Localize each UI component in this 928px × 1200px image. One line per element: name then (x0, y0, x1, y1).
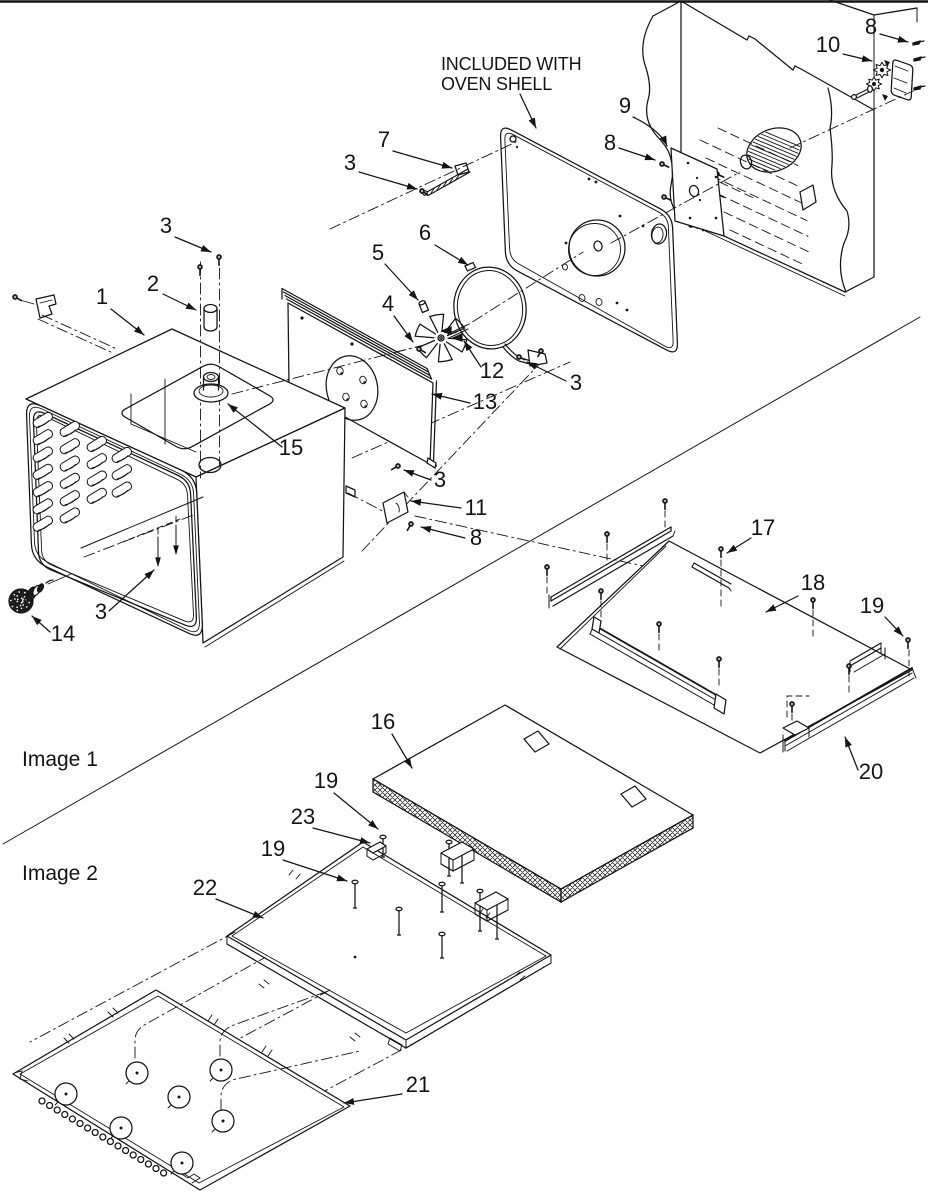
svg-text:12: 12 (480, 358, 504, 383)
svg-text:3: 3 (434, 467, 446, 492)
svg-text:4: 4 (382, 291, 394, 316)
svg-text:3: 3 (344, 150, 356, 175)
svg-text:8: 8 (470, 525, 482, 550)
svg-text:14: 14 (51, 621, 75, 646)
svg-text:13: 13 (473, 389, 497, 414)
svg-text:7: 7 (378, 127, 390, 152)
svg-text:1: 1 (96, 284, 108, 309)
svg-text:20: 20 (859, 759, 883, 784)
svg-text:Image 2: Image 2 (22, 862, 98, 885)
svg-text:10: 10 (816, 32, 840, 57)
svg-text:3: 3 (570, 370, 582, 395)
svg-text:19: 19 (860, 593, 884, 618)
svg-text:19: 19 (314, 768, 338, 793)
svg-text:8: 8 (604, 130, 616, 155)
svg-text:19: 19 (261, 836, 285, 861)
svg-text:3: 3 (160, 213, 172, 238)
svg-text:8: 8 (865, 14, 877, 39)
svg-text:18: 18 (801, 570, 825, 595)
svg-text:23: 23 (291, 804, 315, 829)
svg-text:15: 15 (279, 435, 303, 460)
svg-text:INCLUDED WITH: INCLUDED WITH (441, 54, 581, 74)
svg-text:Image 1: Image 1 (22, 748, 98, 771)
svg-text:6: 6 (419, 220, 431, 245)
svg-text:21: 21 (406, 1072, 430, 1097)
svg-text:17: 17 (751, 515, 775, 540)
svg-text:5: 5 (372, 240, 384, 265)
svg-text:16: 16 (371, 709, 395, 734)
svg-text:22: 22 (193, 875, 217, 900)
svg-text:2: 2 (147, 271, 159, 296)
svg-text:11: 11 (465, 495, 488, 520)
svg-text:OVEN SHELL: OVEN SHELL (441, 74, 552, 94)
svg-text:9: 9 (619, 93, 631, 118)
svg-text:3: 3 (95, 599, 107, 624)
